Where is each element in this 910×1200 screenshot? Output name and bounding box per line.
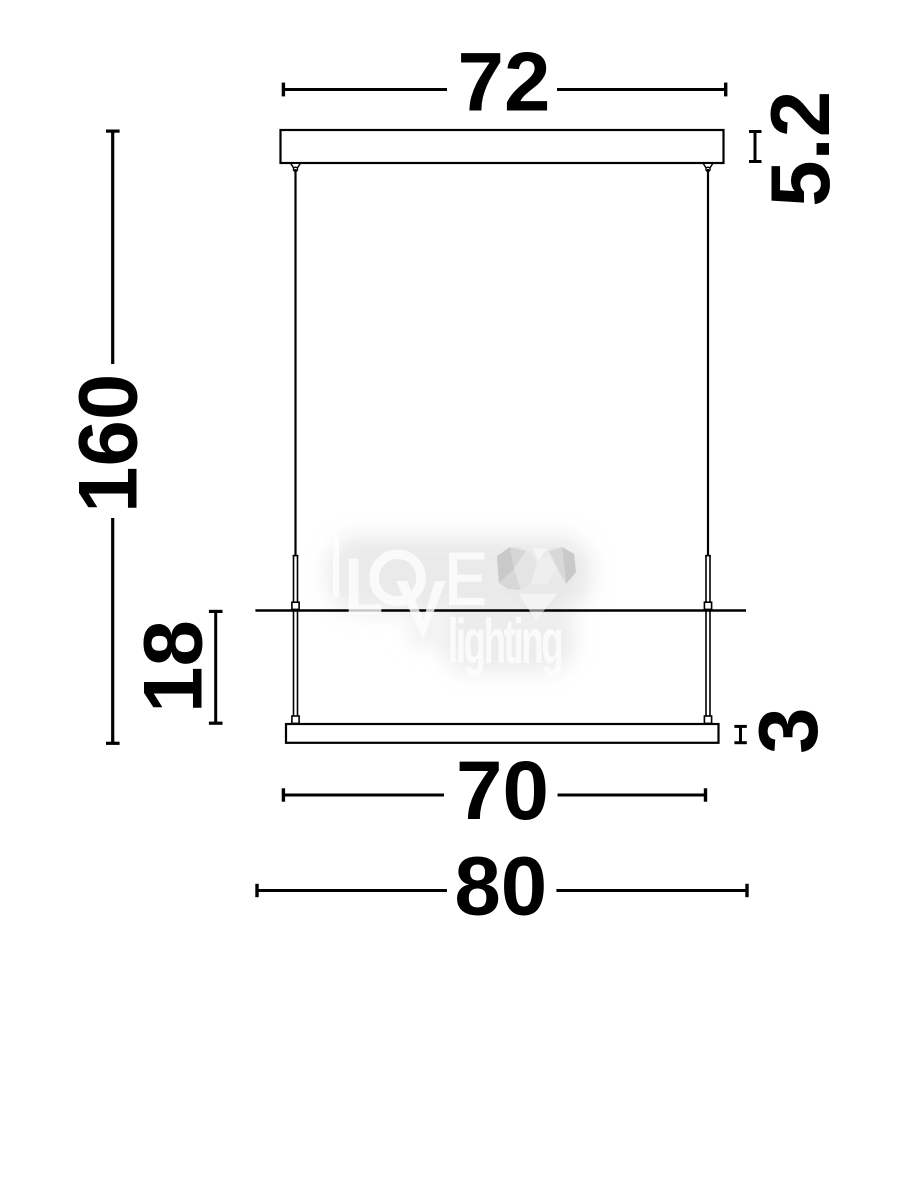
svg-text:5.2: 5.2 <box>753 91 847 207</box>
svg-text:lighting: lighting <box>448 606 561 677</box>
svg-text:3: 3 <box>741 707 835 753</box>
svg-text:70: 70 <box>456 743 549 837</box>
svg-text:80: 80 <box>454 839 547 933</box>
svg-text:18: 18 <box>125 620 219 713</box>
svg-text:160: 160 <box>61 374 155 513</box>
svg-text:72: 72 <box>458 34 551 128</box>
